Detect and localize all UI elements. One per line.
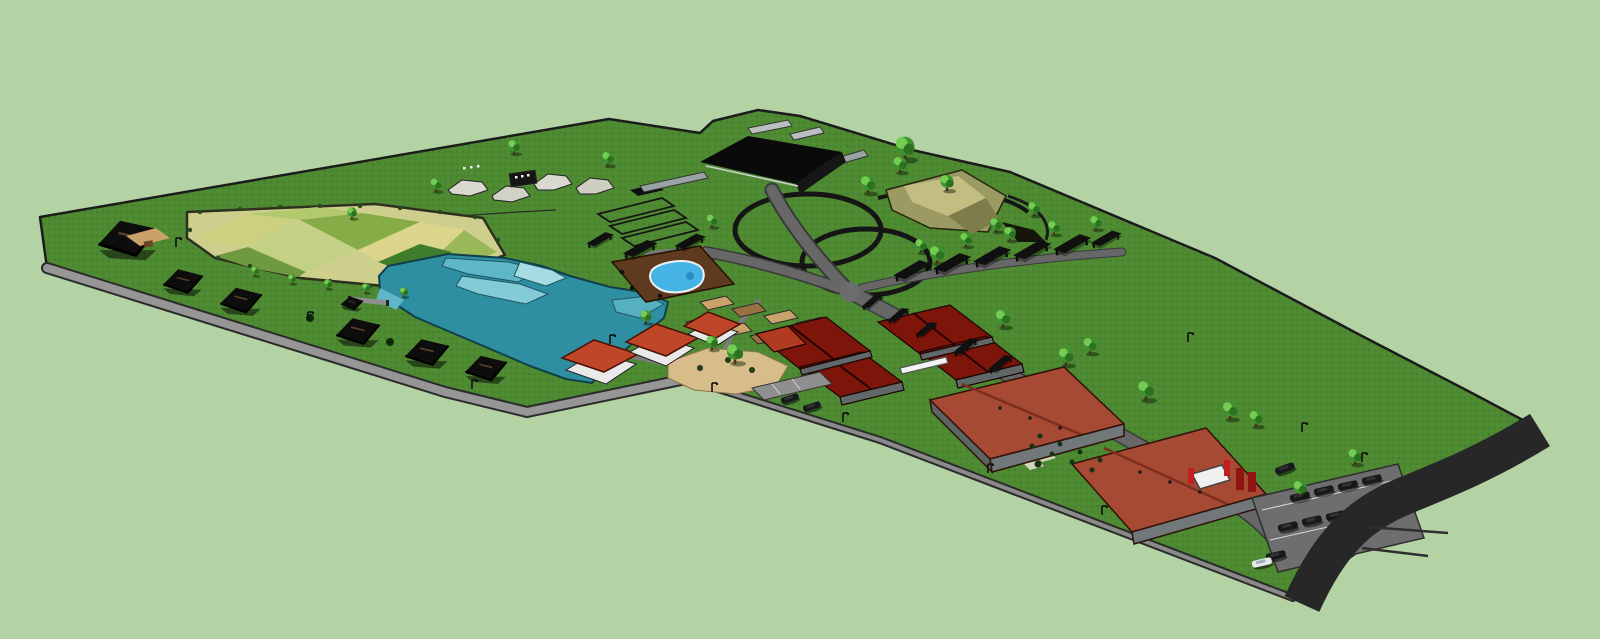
- pen-dot: [515, 176, 518, 179]
- canopy-column: [1188, 468, 1194, 484]
- deck-furniture: [658, 294, 662, 298]
- roof-vent: [1058, 426, 1062, 430]
- hedge-dot: [1090, 468, 1095, 473]
- plaza-bush: [749, 367, 755, 373]
- hedge-dot: [1098, 458, 1103, 463]
- roof-vent: [1028, 416, 1032, 420]
- roof-vent: [998, 406, 1002, 410]
- pool-island: [686, 272, 694, 280]
- deck-furniture: [630, 286, 634, 290]
- bridge-post: [386, 300, 389, 306]
- hedge-dot: [1050, 452, 1055, 457]
- roof-vent: [1168, 480, 1172, 484]
- plaza-bush: [697, 365, 703, 371]
- red-signboard: [1248, 472, 1256, 492]
- hedge-dot: [1078, 450, 1083, 455]
- deck-furniture: [620, 270, 624, 274]
- bush: [386, 338, 394, 346]
- pen-dot: [463, 167, 466, 170]
- pen-dot: [477, 165, 480, 168]
- canopy-column: [1224, 460, 1230, 476]
- pen-dot: [470, 166, 473, 169]
- hedge-dot: [1030, 444, 1035, 449]
- bush: [1035, 461, 1042, 468]
- pen-dot: [521, 175, 524, 178]
- pen-dot: [527, 174, 530, 177]
- hedge-dot: [1070, 460, 1075, 465]
- swimming-pool: [650, 261, 704, 292]
- road-crossing: [840, 282, 860, 302]
- red-signboard: [1236, 468, 1244, 490]
- scene-canvas[interactable]: [0, 0, 1600, 639]
- roof-vent: [1138, 470, 1142, 474]
- roof-vent: [1198, 490, 1202, 494]
- hedge-dot: [1058, 442, 1063, 447]
- hedge-dot: [1038, 434, 1043, 439]
